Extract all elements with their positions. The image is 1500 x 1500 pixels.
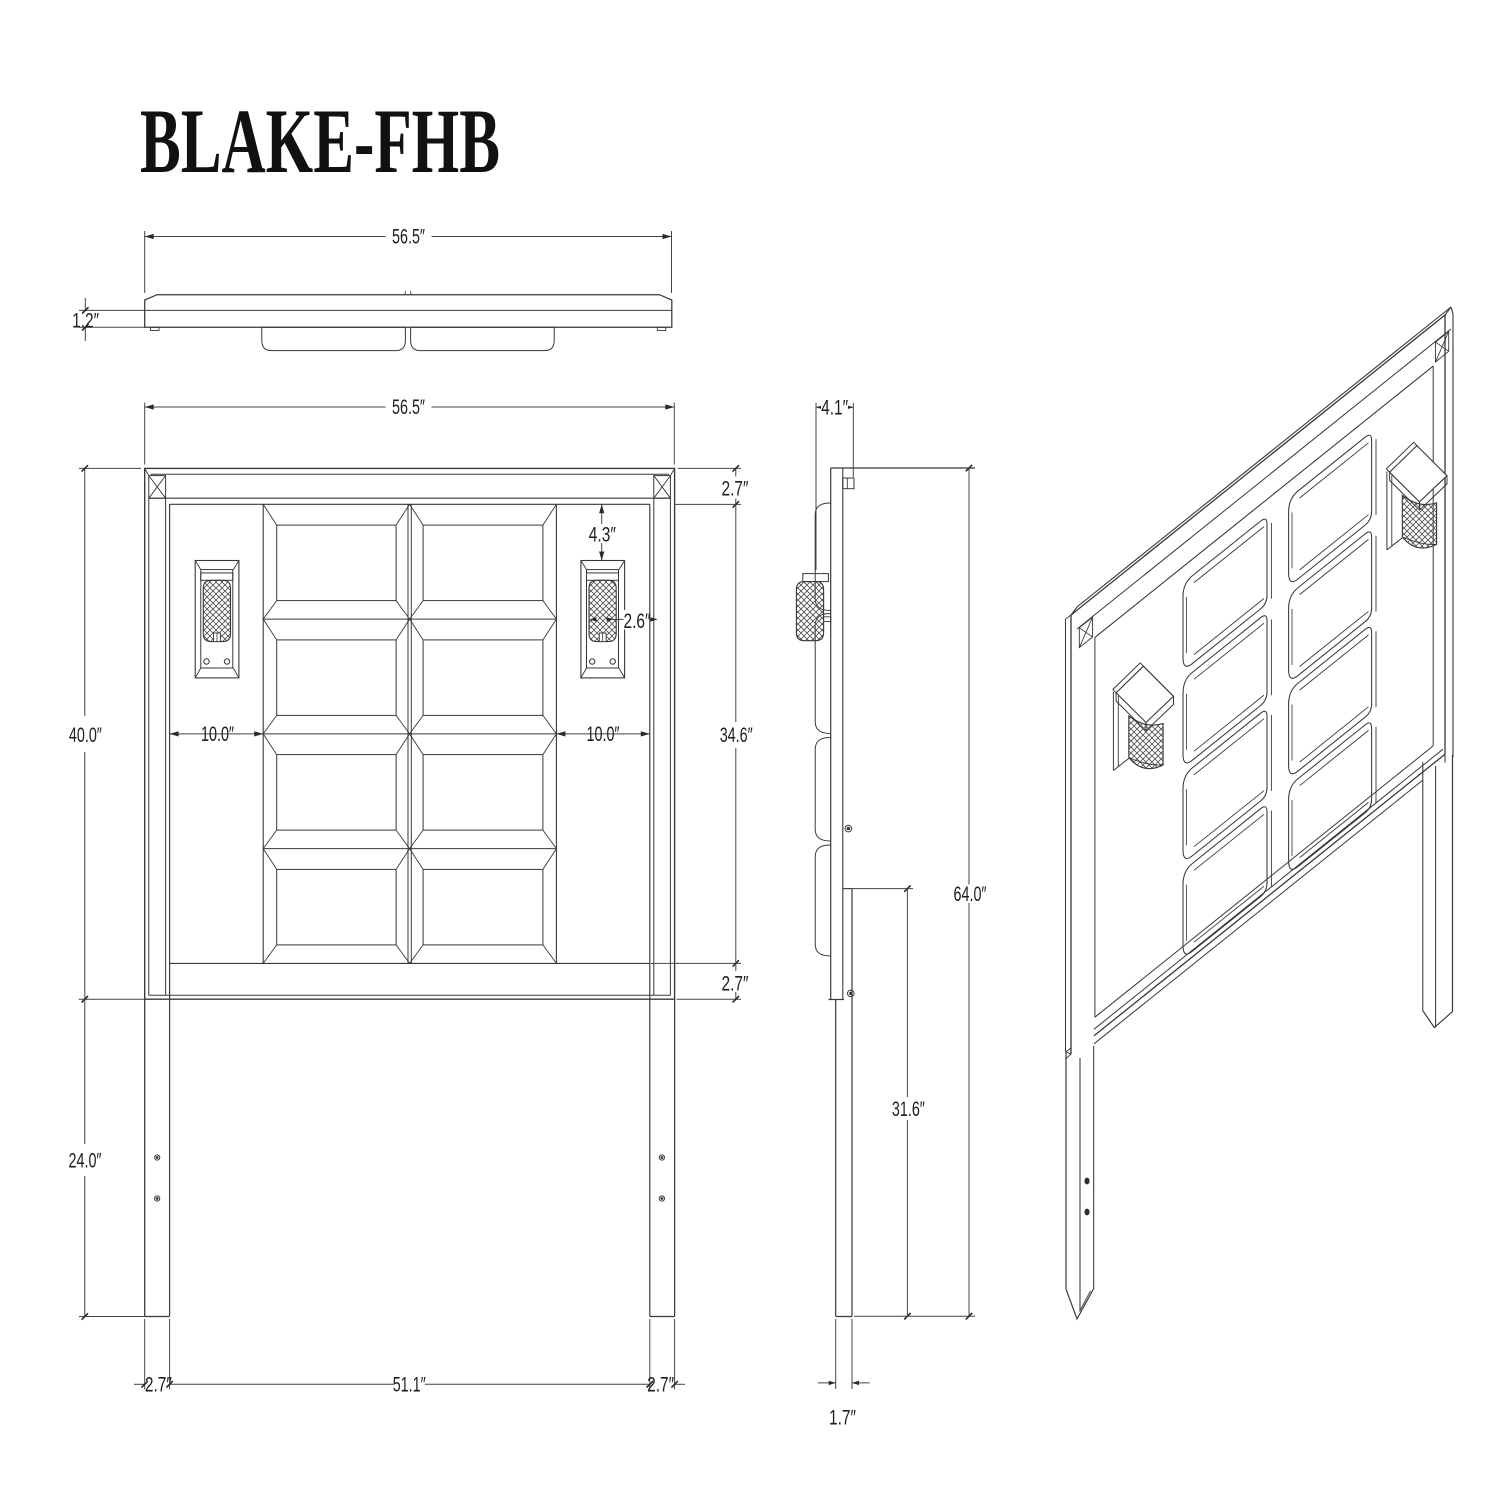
svg-text:2.7″: 2.7″ [722,972,749,996]
svg-text:2.7″: 2.7″ [647,1372,674,1396]
svg-text:34.6″: 34.6″ [720,723,753,747]
svg-text:51.1″: 51.1″ [393,1372,426,1396]
svg-text:24.0″: 24.0″ [69,1149,102,1173]
svg-text:56.5″: 56.5″ [392,395,425,419]
svg-text:2.7″: 2.7″ [722,477,749,501]
svg-text:BLAKE-FHB: BLAKE-FHB [140,90,500,192]
svg-text:1.2″: 1.2″ [72,309,99,333]
svg-text:2.7″: 2.7″ [145,1372,172,1396]
svg-text:10.0″: 10.0″ [587,722,620,746]
svg-text:10.0″: 10.0″ [201,722,234,746]
svg-text:64.0″: 64.0″ [954,882,987,906]
svg-text:56.5″: 56.5″ [392,225,425,249]
svg-text:4.3″: 4.3″ [589,523,616,547]
svg-text:1.7″: 1.7″ [829,1406,856,1430]
svg-text:4.1″: 4.1″ [821,395,848,419]
svg-text:40.0″: 40.0″ [69,723,102,747]
svg-text:2.6″: 2.6″ [624,609,651,633]
svg-text:31.6″: 31.6″ [892,1097,925,1121]
